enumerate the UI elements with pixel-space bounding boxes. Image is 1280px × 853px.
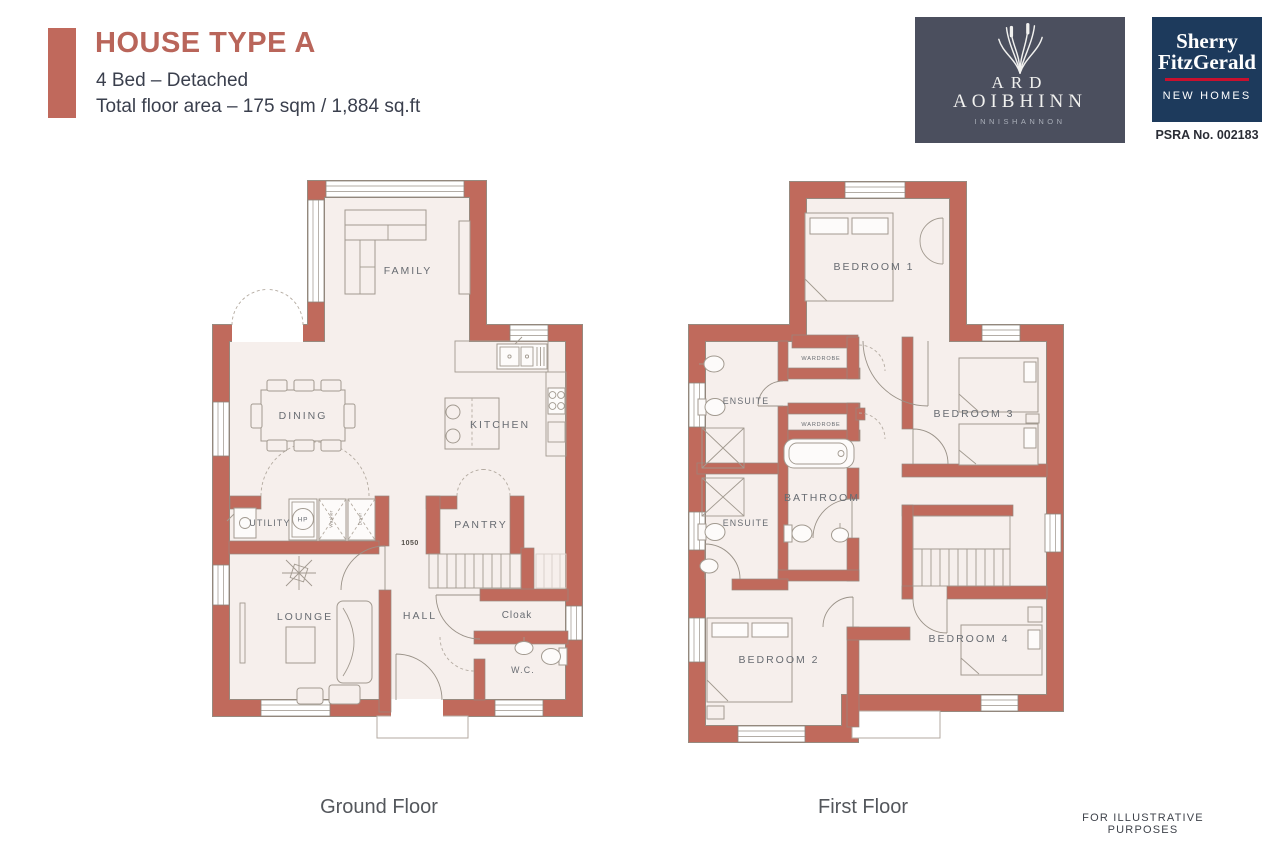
room-label-wardrobe-top: WARDROBE: [801, 356, 840, 362]
subtitle-line1: 4 Bed – Detached: [96, 68, 420, 94]
disclaimer-text: FOR ILLUSTRATIVE PURPOSES: [1048, 812, 1238, 836]
plant-icon: [282, 556, 316, 590]
label-dryer: Dryer: [358, 512, 363, 525]
room-label-bedroom2: BEDROOM 2: [738, 654, 819, 666]
label-hp: HP: [298, 517, 309, 524]
page-subtitle: 4 Bed – Detached Total floor area – 175 …: [96, 68, 420, 120]
ground-floor-caption: Ground Floor: [320, 796, 438, 819]
room-label-cloak: Cloak: [502, 610, 533, 621]
room-label-ensuite-top: ENSUITE: [723, 396, 770, 406]
room-label-dining: DINING: [279, 410, 328, 422]
sherry-division: NEW HOMES: [1152, 90, 1262, 102]
psra-number: PSRA No. 002183: [1152, 128, 1262, 142]
sherry-brand-line1: Sherry: [1152, 31, 1262, 51]
ard-location: INNISHANNON: [915, 117, 1125, 126]
ground-floor-plan: FAMILY DINING KITCHEN UTILITY PANTRY LOU…: [210, 178, 590, 778]
first-floor-plan: BEDROOM 1 WARDROBE ENSUITE WARDROBE BEDR…: [680, 178, 1070, 778]
room-label-bedroom1: BEDROOM 1: [833, 261, 914, 273]
accent-bar: [48, 28, 76, 118]
bulrush-icon: [991, 22, 1049, 74]
room-label-wardrobe-bottom: WARDROBE: [801, 422, 840, 428]
label-washer: Washer: [329, 510, 334, 528]
room-label-lounge: LOUNGE: [277, 611, 333, 623]
room-label-ensuite-bottom: ENSUITE: [723, 518, 770, 528]
ard-name-line1: ARD: [915, 74, 1125, 91]
room-label-hall: HALL: [403, 610, 437, 622]
sherry-brand-line2: FitzGerald: [1152, 51, 1262, 73]
first-floor-caption: First Floor: [818, 796, 908, 819]
page: HOUSE TYPE A 4 Bed – Detached Total floo…: [0, 0, 1280, 853]
room-label-utility: UTILITY: [249, 518, 290, 528]
subtitle-line2: Total floor area – 175 sqm / 1,884 sq.ft: [96, 94, 420, 120]
first-porch-roof: [852, 711, 940, 738]
room-label-bedroom3: BEDROOM 3: [933, 408, 1014, 420]
sherry-red-rule: [1165, 78, 1249, 81]
family-media-unit: [459, 221, 470, 294]
room-label-wc: W.C.: [511, 665, 535, 675]
room-label-kitchen: KITCHEN: [470, 419, 530, 431]
page-title: HOUSE TYPE A: [95, 27, 316, 60]
bedroom1-bed: [805, 213, 893, 301]
ard-name-line2: AOIBHINN: [915, 91, 1125, 112]
label-stairs-dim: 1050: [401, 540, 419, 547]
ground-porch: [377, 716, 468, 738]
sherry-fitzgerald-logo: Sherry FitzGerald NEW HOMES: [1152, 17, 1262, 122]
ard-aoibhinn-logo: ARD AOIBHINN INNISHANNON: [915, 17, 1125, 143]
room-label-bedroom4: BEDROOM 4: [928, 633, 1009, 645]
room-label-bathroom: BATHROOM: [784, 492, 860, 504]
room-label-family: FAMILY: [384, 265, 433, 277]
room-label-pantry: PANTRY: [454, 519, 508, 531]
